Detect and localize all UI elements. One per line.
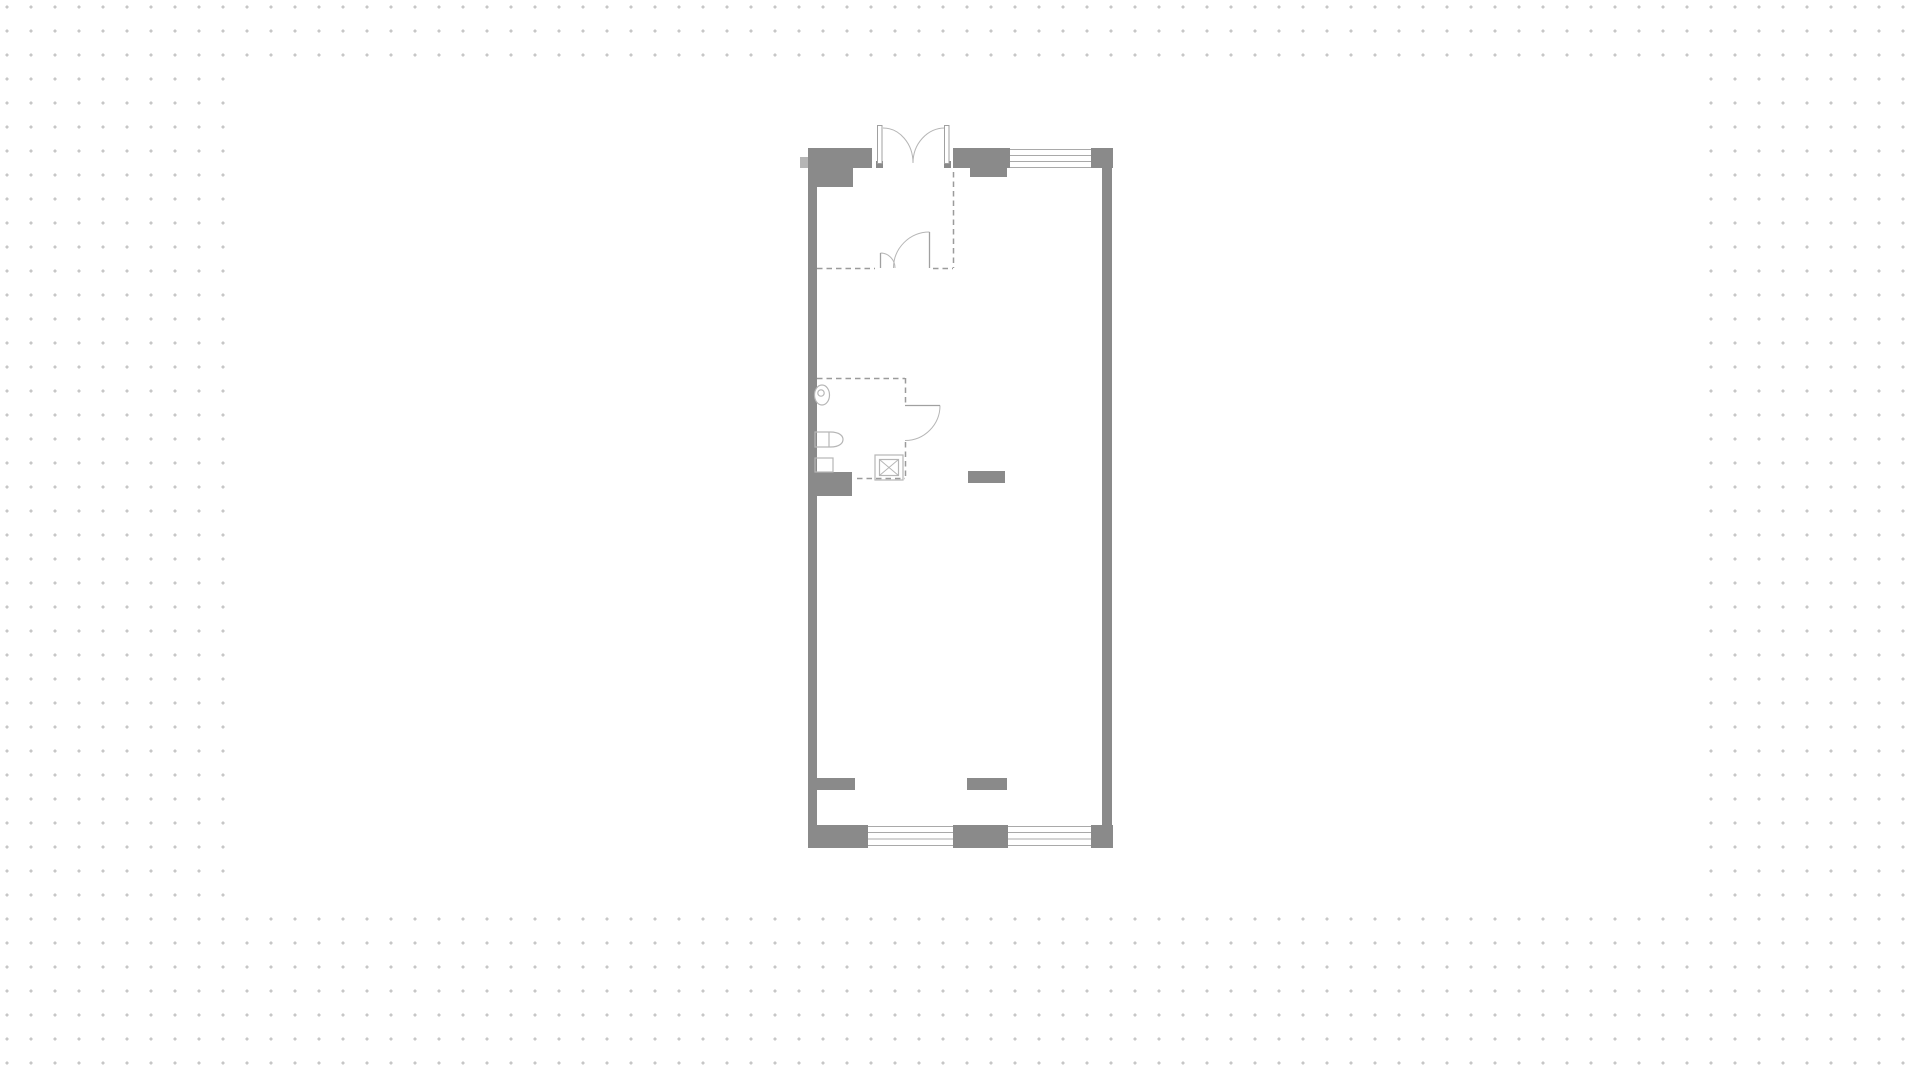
inner-door-swing-small: [881, 253, 896, 268]
entry-door-leaf-left: [878, 126, 883, 164]
wall-bath-stub-a: [815, 472, 852, 487]
workspace-background: { "workspace": { "dot_grid": { "spacing"…: [0, 0, 1920, 1078]
wall-bottom-stub-left: [817, 778, 855, 790]
entry-door-swing-left: [883, 128, 913, 163]
wall-top-right-corner: [1091, 148, 1113, 168]
wall-top-right-block: [953, 148, 1010, 168]
wall-bath-stub-b: [808, 487, 852, 496]
wall-bottom-stub-middle: [967, 778, 1007, 790]
entry-door-leaf-right: [945, 126, 950, 164]
toilet-flush: [818, 390, 824, 396]
wall-bottom-left-block: [808, 825, 868, 848]
wall-bottom-middle-block: [953, 825, 1008, 848]
wall-top-left-block: [808, 148, 872, 168]
wall-right: [1102, 168, 1112, 825]
wall-left: [808, 168, 817, 825]
bathroom-door-swing: [905, 406, 940, 441]
bath-counter: [815, 458, 833, 472]
floorplan-svg[interactable]: [780, 100, 1140, 870]
wall-bottom-right-corner: [1091, 825, 1113, 848]
wall-room-stub: [968, 471, 1005, 483]
inner-door-swing-large: [894, 232, 930, 268]
entry-door-swing-right: [913, 128, 945, 163]
wall-top-left-step: [817, 168, 853, 187]
wall-outer-ledge: [800, 157, 808, 168]
wall-top-right-step: [970, 168, 1007, 177]
